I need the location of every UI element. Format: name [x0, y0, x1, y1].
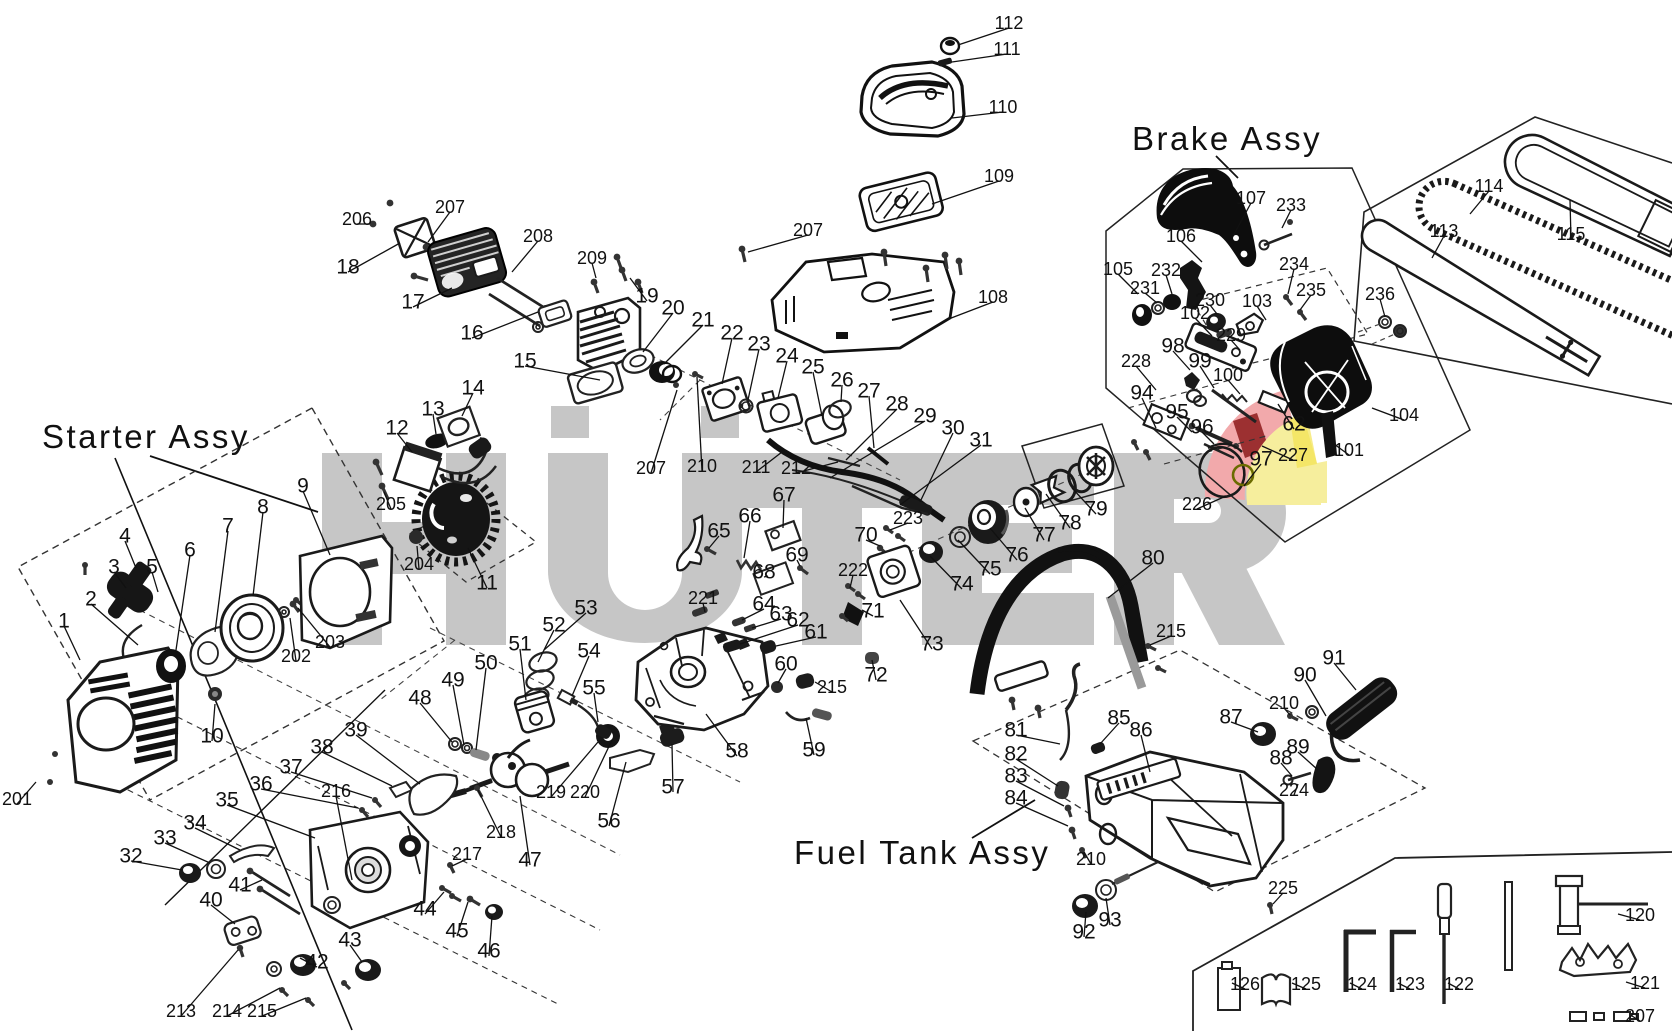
svg-text:226: 226	[1182, 494, 1212, 514]
svg-text:205: 205	[376, 494, 406, 514]
svg-text:72: 72	[864, 664, 887, 687]
svg-text:81: 81	[1004, 719, 1027, 742]
svg-text:93: 93	[1098, 909, 1121, 932]
svg-text:121: 121	[1630, 973, 1660, 993]
svg-text:69: 69	[785, 544, 808, 567]
svg-text:Starter Assy: Starter Assy	[42, 418, 250, 455]
svg-text:80: 80	[1141, 547, 1164, 570]
svg-text:227: 227	[1278, 445, 1308, 465]
svg-text:2: 2	[85, 588, 97, 611]
svg-text:235: 235	[1296, 280, 1326, 300]
svg-text:125: 125	[1291, 974, 1321, 994]
svg-text:83: 83	[1004, 765, 1027, 788]
svg-text:23: 23	[747, 333, 770, 356]
svg-text:75: 75	[978, 558, 1001, 581]
svg-text:103: 103	[1242, 291, 1272, 311]
svg-text:107: 107	[1236, 188, 1266, 208]
svg-text:12: 12	[385, 417, 408, 440]
svg-text:13: 13	[421, 398, 444, 421]
svg-text:36: 36	[249, 773, 272, 796]
svg-text:111: 111	[993, 39, 1020, 59]
svg-text:109: 109	[984, 166, 1014, 186]
svg-text:112: 112	[995, 13, 1024, 33]
svg-text:66: 66	[738, 505, 761, 528]
svg-text:79: 79	[1084, 498, 1107, 521]
svg-text:231: 231	[1130, 278, 1160, 298]
svg-text:10: 10	[200, 725, 223, 748]
svg-text:49: 49	[441, 669, 464, 692]
svg-text:46: 46	[477, 940, 500, 963]
svg-text:104: 104	[1389, 405, 1419, 425]
svg-text:26: 26	[830, 369, 853, 392]
svg-text:1: 1	[58, 610, 70, 633]
svg-text:106: 106	[1166, 226, 1196, 246]
svg-text:90: 90	[1293, 664, 1316, 687]
svg-text:34: 34	[183, 812, 207, 835]
svg-text:84: 84	[1004, 787, 1028, 810]
svg-text:57: 57	[661, 776, 684, 799]
svg-text:29: 29	[913, 405, 936, 428]
svg-text:110: 110	[989, 97, 1018, 117]
svg-text:223: 223	[893, 508, 923, 528]
svg-text:211: 211	[742, 457, 771, 477]
svg-text:74: 74	[950, 573, 974, 596]
svg-text:55: 55	[582, 677, 605, 700]
svg-text:22: 22	[720, 322, 743, 345]
svg-text:115: 115	[1557, 224, 1586, 244]
svg-text:207: 207	[435, 197, 465, 217]
svg-text:50: 50	[474, 652, 497, 675]
svg-text:47: 47	[518, 849, 541, 872]
svg-text:207: 207	[636, 458, 666, 478]
svg-text:100: 100	[1213, 365, 1243, 385]
svg-text:97: 97	[1249, 448, 1272, 471]
svg-text:56: 56	[597, 810, 620, 833]
svg-text:11: 11	[476, 572, 498, 595]
svg-text:219: 219	[536, 782, 566, 802]
svg-text:214: 214	[212, 1001, 242, 1021]
svg-text:58: 58	[725, 740, 748, 763]
svg-text:212: 212	[781, 458, 811, 478]
svg-text:64: 64	[752, 593, 776, 616]
svg-text:207: 207	[793, 220, 823, 240]
svg-text:32: 32	[119, 845, 142, 868]
svg-text:68: 68	[752, 561, 775, 584]
svg-text:Brake Assy: Brake Assy	[1132, 120, 1322, 157]
svg-text:215: 215	[817, 677, 847, 697]
svg-text:213: 213	[166, 1001, 196, 1021]
svg-text:9: 9	[297, 475, 309, 498]
svg-text:230: 230	[1195, 290, 1225, 310]
svg-text:123: 123	[1395, 974, 1425, 994]
svg-text:8: 8	[257, 496, 269, 519]
svg-text:14: 14	[461, 377, 485, 400]
svg-text:215: 215	[247, 1001, 277, 1021]
svg-text:228: 228	[1121, 351, 1151, 371]
svg-text:215: 215	[1156, 621, 1186, 641]
svg-text:78: 78	[1058, 512, 1081, 535]
svg-text:99: 99	[1188, 350, 1211, 373]
svg-text:95: 95	[1165, 401, 1188, 424]
svg-text:31: 31	[969, 429, 992, 452]
svg-text:209: 209	[577, 248, 607, 268]
svg-text:60: 60	[774, 653, 797, 676]
svg-text:16: 16	[460, 322, 483, 345]
svg-text:92: 92	[1072, 921, 1095, 944]
svg-text:201: 201	[2, 789, 32, 809]
svg-text:224: 224	[1279, 780, 1309, 800]
svg-text:220: 220	[570, 782, 600, 802]
svg-text:232: 232	[1151, 260, 1181, 280]
svg-text:48: 48	[408, 687, 431, 710]
svg-text:218: 218	[486, 822, 516, 842]
svg-text:222: 222	[838, 560, 868, 580]
svg-text:82: 82	[1004, 743, 1027, 766]
svg-text:54: 54	[577, 640, 601, 663]
svg-text:70: 70	[854, 524, 877, 547]
svg-text:208: 208	[523, 226, 553, 246]
svg-text:114: 114	[1475, 176, 1504, 196]
svg-text:105: 105	[1103, 259, 1133, 279]
svg-text:210: 210	[1076, 849, 1106, 869]
svg-text:77: 77	[1032, 524, 1055, 547]
svg-text:202: 202	[281, 646, 311, 666]
svg-text:85: 85	[1107, 707, 1130, 730]
svg-text:233: 233	[1276, 195, 1306, 215]
svg-text:229: 229	[1216, 325, 1246, 345]
svg-text:207: 207	[1625, 1006, 1655, 1026]
svg-text:89: 89	[1286, 736, 1309, 759]
svg-text:101: 101	[1334, 440, 1364, 460]
svg-text:67: 67	[772, 484, 795, 507]
svg-text:18: 18	[336, 256, 359, 279]
svg-text:216: 216	[321, 781, 351, 801]
svg-text:39: 39	[344, 719, 367, 742]
svg-text:7: 7	[222, 515, 234, 538]
svg-text:96: 96	[1190, 416, 1213, 439]
svg-text:19: 19	[635, 285, 658, 308]
svg-text:204: 204	[404, 554, 434, 574]
svg-text:25: 25	[801, 356, 824, 379]
svg-text:20: 20	[661, 297, 684, 320]
svg-text:236: 236	[1365, 284, 1395, 304]
svg-text:210: 210	[687, 456, 717, 476]
svg-text:86: 86	[1129, 719, 1152, 742]
svg-text:94: 94	[1130, 382, 1154, 405]
svg-text:217: 217	[452, 844, 482, 864]
svg-text:38: 38	[310, 736, 333, 759]
svg-text:15: 15	[513, 350, 536, 373]
svg-text:37: 37	[279, 756, 302, 779]
svg-text:30: 30	[941, 417, 964, 440]
svg-text:51: 51	[508, 633, 531, 656]
svg-text:27: 27	[857, 380, 880, 403]
svg-text:87: 87	[1219, 706, 1242, 729]
svg-text:59: 59	[802, 739, 825, 762]
svg-text:210: 210	[1269, 693, 1299, 713]
svg-text:221: 221	[688, 588, 718, 608]
svg-text:73: 73	[920, 633, 943, 656]
svg-text:120: 120	[1625, 905, 1655, 925]
svg-text:Fuel Tank Assy: Fuel Tank Assy	[794, 834, 1050, 871]
svg-text:122: 122	[1444, 974, 1474, 994]
svg-text:3: 3	[108, 556, 120, 579]
svg-text:203: 203	[315, 632, 345, 652]
svg-text:53: 53	[574, 597, 597, 620]
svg-text:62: 62	[1282, 413, 1305, 436]
svg-text:45: 45	[445, 920, 468, 943]
svg-text:76: 76	[1005, 544, 1028, 567]
svg-text:108: 108	[978, 287, 1008, 307]
svg-text:4: 4	[119, 525, 131, 548]
svg-text:113: 113	[1430, 221, 1459, 241]
svg-text:234: 234	[1279, 254, 1309, 274]
svg-text:124: 124	[1347, 974, 1377, 994]
svg-text:52: 52	[542, 614, 565, 637]
svg-text:44: 44	[413, 898, 437, 921]
svg-text:71: 71	[861, 600, 884, 623]
svg-text:91: 91	[1322, 647, 1345, 670]
svg-text:42: 42	[305, 951, 328, 974]
svg-text:28: 28	[885, 393, 908, 416]
svg-text:43: 43	[338, 929, 361, 952]
svg-text:41: 41	[228, 874, 251, 897]
svg-text:17: 17	[401, 291, 424, 314]
svg-text:225: 225	[1268, 878, 1298, 898]
svg-text:126: 126	[1230, 974, 1260, 994]
svg-text:21: 21	[691, 309, 714, 332]
svg-text:40: 40	[199, 889, 222, 912]
svg-text:6: 6	[184, 539, 196, 562]
svg-text:206: 206	[342, 209, 372, 229]
svg-text:35: 35	[215, 789, 238, 812]
svg-text:98: 98	[1161, 335, 1184, 358]
svg-text:33: 33	[153, 827, 176, 850]
svg-text:24: 24	[775, 345, 799, 368]
svg-text:65: 65	[707, 520, 730, 543]
svg-text:5: 5	[146, 556, 158, 579]
